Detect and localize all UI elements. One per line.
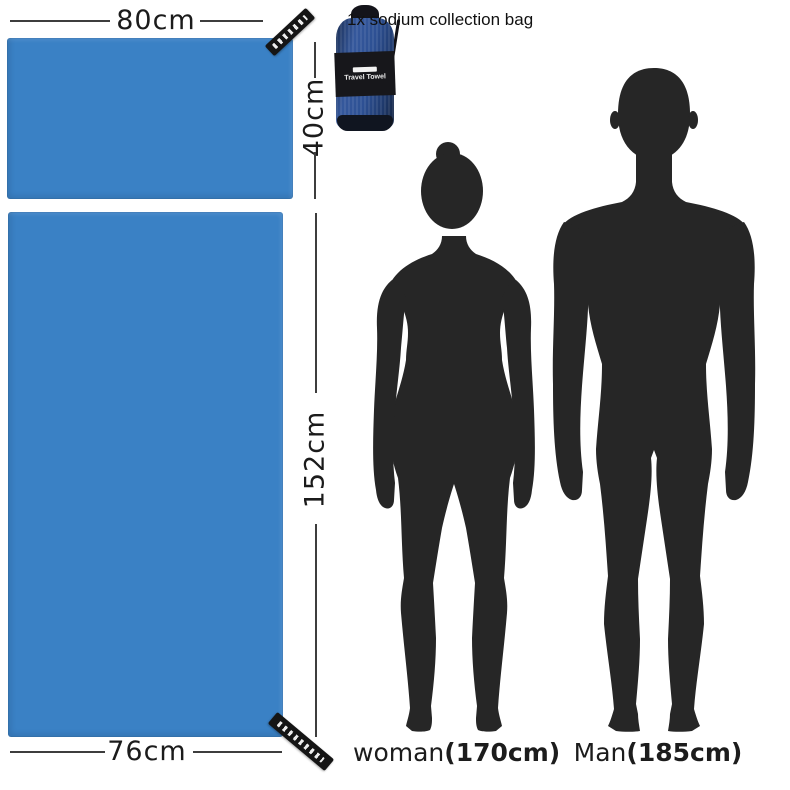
small-towel-height-label: 40cm [288, 80, 340, 154]
dimension-line-152cm-top [315, 213, 317, 393]
man-label: Man(185cm) [568, 740, 748, 765]
man-left-ear [610, 111, 620, 129]
product-dimension-diagram: 80cm 40cm 152cm 76cm Travel Towel 1x sod… [0, 0, 790, 790]
dimension-line-152cm-bottom [315, 524, 317, 737]
dimension-line-40cm-bottom [314, 152, 316, 199]
man-label-name: Man [574, 738, 627, 767]
brand-logo-badge [353, 67, 377, 73]
woman-label: woman(170cm) [353, 740, 533, 765]
man-right-arm [716, 222, 755, 500]
brand-tag-print [277, 721, 325, 763]
large-towel-height-text: 152cm [302, 410, 329, 508]
brand-tag-large-towel [268, 712, 334, 771]
large-towel-height-label: 152cm [289, 406, 341, 512]
small-towel-width-label: 80cm [112, 7, 200, 34]
woman-silhouette [368, 138, 540, 738]
man-silhouette [552, 64, 764, 736]
man-left-arm [553, 222, 592, 500]
dimension-line-76cm-left [10, 751, 105, 753]
woman-head [421, 153, 483, 229]
large-towel-width-label: 76cm [105, 738, 189, 765]
woman-body [389, 236, 519, 732]
man-head [618, 68, 690, 161]
dimension-line-76cm-right [193, 751, 282, 753]
man-label-height: (185cm) [626, 738, 742, 767]
woman-label-height: (170cm) [444, 738, 560, 767]
woman-label-name: woman [353, 738, 444, 767]
pouch-band-label: Travel Towel [344, 73, 386, 81]
dimension-line-80cm-left [10, 20, 110, 22]
pouch-label-band: Travel Towel [334, 51, 395, 97]
small-towel-height-text: 40cm [301, 77, 328, 157]
man-right-ear [688, 111, 698, 129]
dimension-line-40cm-top [314, 42, 316, 78]
included-bag-note: 1x sodium collection bag [347, 10, 533, 30]
dimension-line-80cm-right [200, 20, 263, 22]
large-towel [8, 212, 283, 737]
small-towel [7, 38, 293, 199]
pouch-base [337, 115, 393, 131]
